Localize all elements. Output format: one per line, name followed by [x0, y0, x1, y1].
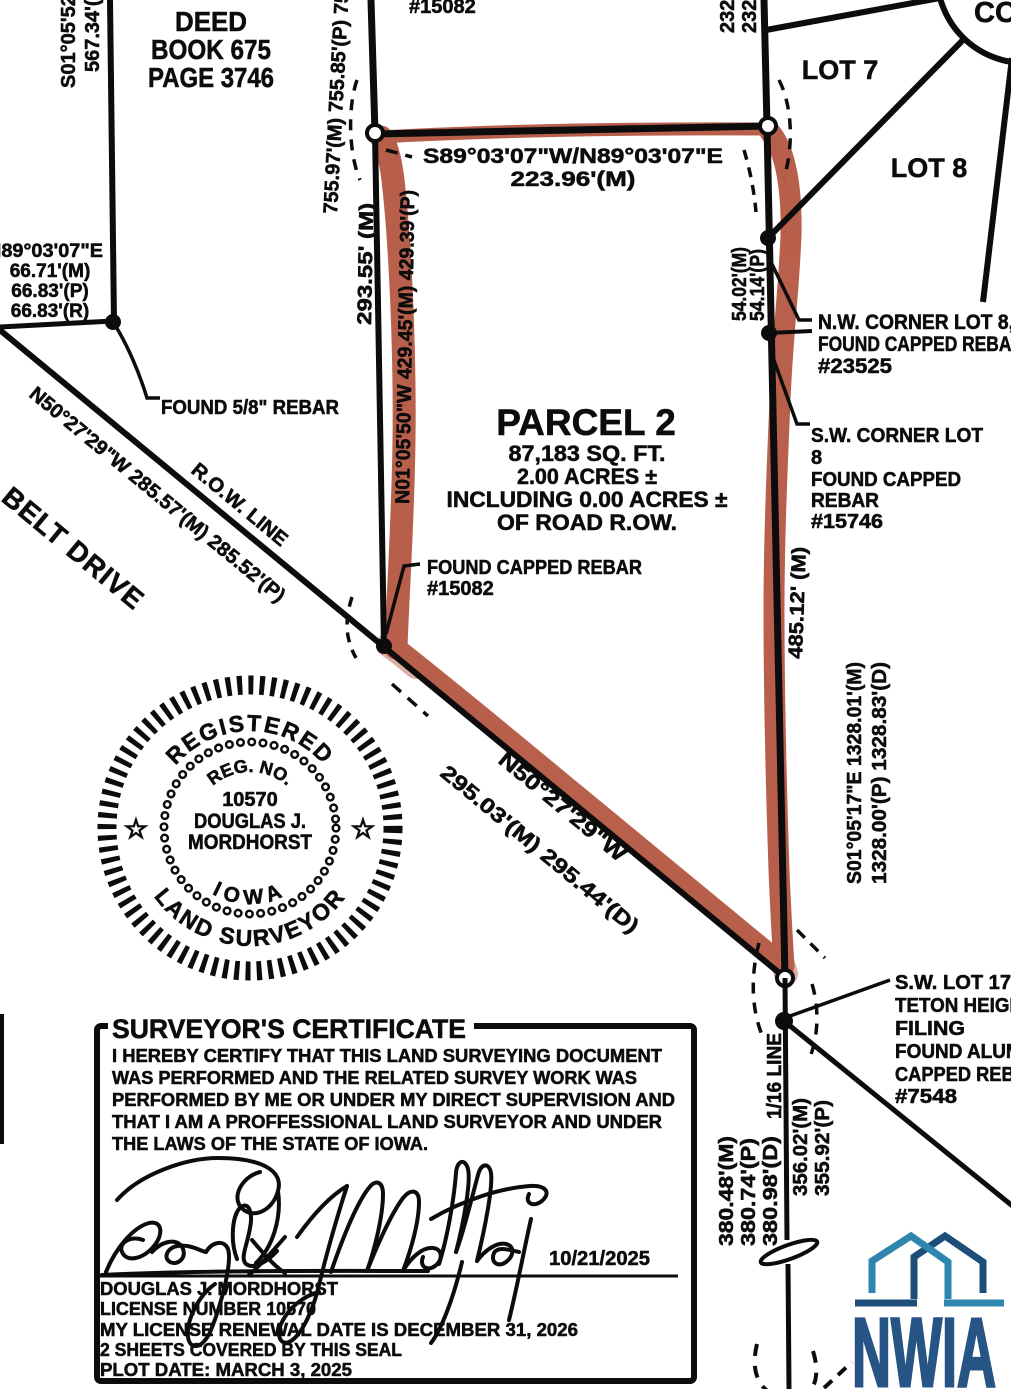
svg-text:293.55' (M): 293.55' (M): [354, 203, 378, 325]
svg-text:66.83'(P): 66.83'(P): [11, 281, 88, 302]
svg-text:THE LAWS OF THE STATE OF IOWA.: THE LAWS OF THE STATE OF IOWA.: [112, 1133, 428, 1154]
svg-text:1/16 LINE: 1/16 LINE: [764, 1033, 786, 1119]
svg-text:1328.00'(P) 1328.83'(D): 1328.00'(P) 1328.83'(D): [869, 662, 891, 884]
svg-text:LOT 8: LOT 8: [891, 153, 968, 183]
svg-text:54.14'(P): 54.14'(P): [747, 249, 769, 321]
svg-text:DOUGLAS J.: DOUGLAS J.: [194, 810, 306, 833]
svg-text:#15746: #15746: [811, 511, 883, 533]
svg-text:FOUND CAPPED REBAR: FOUND CAPPED REBAR: [427, 557, 642, 579]
svg-text:☆: ☆: [351, 814, 375, 844]
svg-text:66.83'(R): 66.83'(R): [11, 301, 89, 322]
svg-text:PLOT DATE: MARCH 3, 2025: PLOT DATE: MARCH 3, 2025: [100, 1359, 352, 1380]
svg-text:☆: ☆: [124, 814, 148, 844]
svg-text:MY LICENSE RENEWAL DATE IS DEC: MY LICENSE RENEWAL DATE IS DECEMBER 31, …: [100, 1319, 578, 1340]
svg-text:223.96'(M): 223.96'(M): [511, 168, 636, 191]
svg-text:PAGE 3746: PAGE 3746: [148, 62, 274, 93]
svg-text:FOUND CAPPED: FOUND CAPPED: [811, 469, 961, 491]
svg-text:OF ROAD R.OW.: OF ROAD R.OW.: [497, 510, 677, 535]
svg-text:87,183 SQ. FT.: 87,183 SQ. FT.: [509, 441, 666, 466]
svg-text:8: 8: [811, 447, 822, 469]
svg-text:#15082: #15082: [409, 0, 476, 18]
svg-text:567.34'(M): 567.34'(M): [82, 0, 104, 72]
svg-text:TETON HEIGHTS: TETON HEIGHTS: [895, 995, 1011, 1017]
svg-text:NWIA: NWIA: [852, 1298, 996, 1389]
svg-text:I HEREBY CERTIFY THAT THIS LAN: I HEREBY CERTIFY THAT THIS LAND SURVEYIN…: [112, 1045, 663, 1066]
svg-text:380.98'(D): 380.98'(D): [760, 1136, 782, 1246]
svg-text:SURVEYOR'S CERTIFICATE: SURVEYOR'S CERTIFICATE: [112, 1014, 466, 1044]
svg-text:380.48'(M): 380.48'(M): [716, 1136, 738, 1246]
svg-text:66.71'(M): 66.71'(M): [10, 261, 91, 282]
svg-text:#23525: #23525: [818, 355, 892, 378]
svg-text:355.92'(P): 355.92'(P): [812, 1100, 834, 1196]
svg-text:CAPPED REBAR: CAPPED REBAR: [895, 1064, 1011, 1086]
svg-text:2 SHEETS COVERED BY THIS SEAL: 2 SHEETS COVERED BY THIS SEAL: [100, 1339, 402, 1360]
svg-text:FOUND CAPPED REBAR: FOUND CAPPED REBAR: [818, 333, 1011, 356]
svg-text:S01°05'52"E: S01°05'52"E: [58, 0, 80, 88]
svg-text:N89°03'07"E: N89°03'07"E: [0, 241, 103, 262]
svg-text:S89°03'07"W/N89°03'07"E: S89°03'07"W/N89°03'07"E: [423, 145, 723, 168]
svg-text:S.W. CORNER LOT: S.W. CORNER LOT: [811, 425, 983, 447]
svg-text:BELT DRIVE: BELT DRIVE: [0, 481, 150, 616]
svg-text:380.74'(P): 380.74'(P): [738, 1138, 760, 1246]
svg-text:2.00 ACRES ±: 2.00 ACRES ±: [517, 464, 657, 489]
svg-text:FILING: FILING: [895, 1018, 965, 1040]
svg-text:2325: 2325: [739, 0, 761, 33]
svg-text:10570: 10570: [222, 789, 278, 811]
svg-text:10/21/2025: 10/21/2025: [549, 1248, 650, 1270]
svg-text:485.12' (M): 485.12' (M): [785, 546, 811, 659]
svg-text:INCLUDING 0.00 ACRES ±: INCLUDING 0.00 ACRES ±: [447, 487, 728, 512]
svg-text:LOT 7: LOT 7: [802, 55, 879, 85]
svg-text:356.02'(M): 356.02'(M): [790, 1098, 812, 1196]
svg-text:DEED: DEED: [175, 6, 247, 37]
svg-text:WAS PERFORMED AND THE RELATED: WAS PERFORMED AND THE RELATED SURVEY WOR…: [112, 1067, 637, 1088]
svg-text:PARCEL 2: PARCEL 2: [496, 402, 676, 443]
svg-text:THAT I AM A PROFFESSIONAL LAND: THAT I AM A PROFFESSIONAL LAND SURVEYOR …: [112, 1111, 662, 1132]
svg-text:S01°05'17"E 1328.01'(M): S01°05'17"E 1328.01'(M): [844, 662, 866, 884]
svg-text:PERFORMED BY ME OR UNDER MY DI: PERFORMED BY ME OR UNDER MY DIRECT SUPER…: [112, 1089, 675, 1110]
svg-text:S.W. LOT 17: S.W. LOT 17: [895, 972, 1011, 994]
svg-text:#15082: #15082: [427, 578, 494, 600]
svg-text:755.97'(M) 755.85'(P) 75: 755.97'(M) 755.85'(P) 75: [320, 0, 354, 214]
svg-text:2325: 2325: [717, 0, 739, 33]
svg-text:MORDHORST: MORDHORST: [188, 831, 312, 854]
svg-text:CO: CO: [974, 0, 1011, 29]
svg-text:FOUND 5/8" REBAR: FOUND 5/8" REBAR: [161, 397, 340, 419]
svg-text:BOOK 675: BOOK 675: [151, 34, 271, 65]
svg-text:REBAR: REBAR: [811, 490, 880, 512]
svg-text:N.W. CORNER LOT 8,: N.W. CORNER LOT 8,: [818, 311, 1011, 334]
svg-text:N01°05'50"W 429.45'(M) 429.39': N01°05'50"W 429.45'(M) 429.39'(P): [392, 190, 419, 504]
svg-text:#7548: #7548: [895, 1086, 957, 1108]
svg-text:DOUGLAS J. MORDHORST: DOUGLAS J. MORDHORST: [100, 1278, 339, 1299]
svg-text:FOUND ALUM.: FOUND ALUM.: [895, 1041, 1011, 1063]
svg-text:N50°27'29"W: N50°27'29"W: [494, 748, 631, 867]
